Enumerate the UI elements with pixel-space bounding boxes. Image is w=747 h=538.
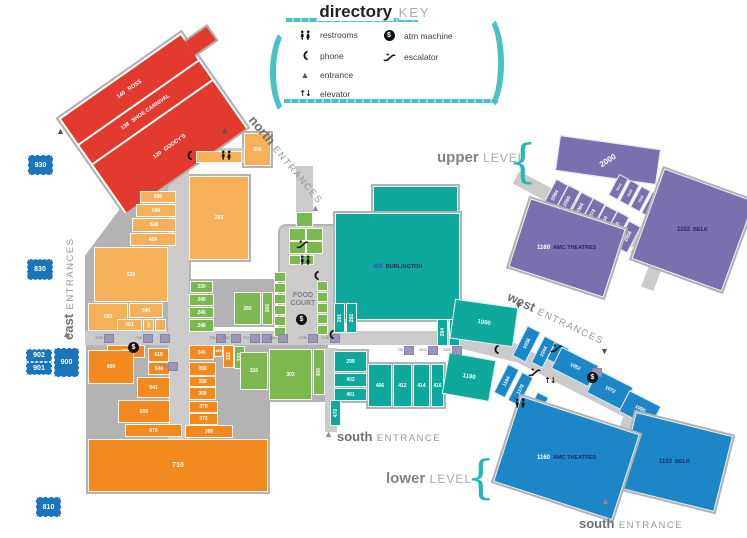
phone-icon [327,329,335,340]
badge-810: 810 [36,497,61,517]
kiosk-square [168,362,178,371]
store-299: 299 [334,351,367,372]
kiosk-square [250,334,260,343]
store-number: 292 [349,314,355,322]
key-title-light: KEY [399,5,431,20]
key-title: directory KEY [272,2,476,22]
store-number: 2022 [637,195,644,204]
kiosk-number: 2706 [154,364,167,368]
store-name: BURLINGTON [386,264,423,270]
store-number: 350 [198,366,206,372]
store-1102: 1102BELK [617,412,733,512]
food-stall [274,316,286,326]
entrance-icon: ▲ [56,127,65,136]
store-670: 670 [125,424,182,437]
store-number: 416 [433,383,441,389]
store-number: 550 [147,322,151,328]
store-number: 1102 [677,227,690,233]
store-346: 346 [189,345,214,360]
restrooms-icon [514,398,527,408]
store-322: 322 [223,345,234,368]
east-light: ENTRANCES [65,237,76,309]
store-number: 590 [154,194,162,200]
store-470: 470 [330,400,341,426]
store-number: 248 [197,323,205,329]
store-650: 650 [118,400,170,423]
east-bold: east [61,314,76,340]
key-item-label: restrooms [320,30,358,40]
upper-level-brace: { [508,134,537,188]
phone-icon [298,50,312,61]
food-court-line2: COURT [283,300,323,308]
east-entrances-label: east ENTRANCES [60,237,78,340]
key-item-label: elevator [320,89,350,99]
store-240: 240 [189,294,214,306]
store-number: 470 [333,409,339,417]
store-number: 540 [142,308,150,314]
badge-900: 900 [54,348,79,377]
store-520: 520 [94,247,168,302]
lower-level-label: lower LEVEL [386,470,472,488]
store-305: 305 [313,349,325,395]
store-number: 120 [152,150,163,160]
store-596: 596 [136,204,176,217]
store-unit [196,151,242,163]
kiosk-number: 2700 [90,336,103,340]
store-246: 246 [189,307,214,318]
store-380: 380 [185,425,233,438]
badge-930: 930 [28,155,53,175]
kiosk-square [143,334,153,343]
store-550: 550 [143,319,154,331]
key-item-atm: $ atm machine [382,30,453,41]
store-number: 406 [376,383,384,389]
food-stall [296,212,313,227]
food-stall [317,314,328,324]
entrance-icon: ▲ [298,71,312,80]
escalator-icon [528,368,541,377]
store-number: 299 [346,359,354,365]
store-number: 380 [205,429,213,435]
food-court-label: FOOD COURT [283,292,323,308]
store-number: 710 [172,462,184,469]
store-unit [155,319,166,331]
store-248: 248 [189,319,214,332]
store-number: 330 [216,349,222,353]
store-1160: 1160AMC THEATRES [493,396,640,520]
key-item-restrooms: restrooms [298,30,358,40]
store-number: 1190 [462,373,476,381]
store-number: 200 [253,147,261,153]
store-412: 412 [393,364,412,407]
store-number: 596 [152,208,160,214]
store-230: 230 [190,281,213,293]
kiosk-number: 726 [202,336,215,340]
store-number: 2000 [598,151,618,168]
store-number: 641 [149,385,157,391]
restrooms-icon [220,150,233,160]
kiosk-square [404,346,414,355]
entrance-icon: ▲ [600,347,609,356]
key-title-bold: directory [317,2,394,21]
restrooms-icon [298,30,312,40]
store-710: 710 [88,439,268,492]
store-number: 561 [125,322,133,328]
kiosk-number: 2730 [294,336,307,340]
store-number: 1160 [537,245,550,251]
south-right-bold: south [579,516,614,531]
kiosk-square [160,334,170,343]
store-number: 294 [440,328,446,336]
phone-icon [312,270,320,281]
store-number: 402 [346,377,354,383]
lower-level-brace: { [466,450,495,504]
store-420: 420 [130,233,176,246]
store-370: 370 [189,401,218,413]
badge-901: 901 [26,362,52,375]
phone-icon [492,344,500,355]
store-number: 619 [154,352,162,358]
store-number: 1194 [501,375,511,387]
south-center-bold: south [337,429,372,444]
store-260: 260 [234,292,261,325]
store-number: 140 [116,90,127,100]
store-590: 590 [140,191,176,203]
atm-icon: $ [587,372,598,383]
store-358: 358 [189,376,216,387]
food-stall [274,272,286,282]
store-name: GOODY'S [163,133,187,153]
store-number: 322 [226,352,232,360]
badge-830: 830 [27,259,53,280]
entrance-icon: ▲ [601,497,610,506]
key-item-label: escalator [404,52,439,62]
store-406: 406 [368,364,392,407]
store-number: 1102 [659,459,672,465]
kiosk-number: 2309 [438,348,451,352]
upper-bold: upper [437,149,479,166]
store-name: AMC THEATRES [553,245,596,251]
store-number: 670 [149,428,157,434]
elevator-icon: ↑↓ [298,90,312,98]
key-item-label: atm machine [404,31,453,41]
store-540: 540 [129,303,163,318]
mall-directory-map: directory KEY restrooms phone ▲ entrance… [0,0,747,538]
store-619: 619 [148,348,169,362]
kiosk-square [278,334,288,343]
key-item-elevator: ↑↓ elevator [298,89,350,99]
store-number: 2090 [562,196,573,209]
store-number: 240 [197,297,205,303]
store-number: 400 [373,264,383,270]
kiosk-number: 2702 [217,336,230,340]
kiosk-number: 724 [236,336,249,340]
store-330: 330 [214,345,223,357]
store-number: 1178 [515,383,525,395]
kiosk-number: 2420 [264,336,277,340]
store-number: 420 [149,237,157,243]
key-bottom-bar [284,99,498,103]
store-number: 138 [120,121,131,131]
escalator-icon [550,344,563,353]
store-number: 346 [197,350,205,356]
restrooms-icon [299,255,312,265]
store-name: BELK [694,227,709,233]
store-number: 266 [265,304,271,312]
atm-icon: $ [128,342,139,353]
south-right-light: ENTRANCE [619,520,683,531]
store-number: 1072 [604,385,617,395]
store-291: 291 [334,303,345,333]
store-number: 1160 [537,455,550,461]
store-number: 600 [107,364,115,370]
store-number: 650 [140,409,148,415]
store-350: 350 [189,362,216,376]
store-number: 414 [417,383,425,389]
store-number: 370 [199,404,207,410]
kiosk-square [104,334,114,343]
store-number: 230 [197,284,205,290]
lower-bold: lower [386,470,425,487]
store-292: 292 [346,303,357,333]
directory-key: directory KEY restrooms phone ▲ entrance… [272,4,500,105]
store-203: 203 [189,176,249,260]
store-number: 1038 [521,338,531,351]
key-item-label: phone [320,51,344,61]
store-name: BELK [676,459,691,465]
south-entrance-center-label: south ENTRANCE [337,428,441,446]
kiosk-number: 710 [129,336,142,340]
south-center-light: ENTRANCE [377,433,441,444]
kiosk-square [452,346,462,355]
store-2000: 2000 [555,135,661,185]
key-item-escalator: escalator [382,52,439,62]
store-number: 1000 [477,319,491,327]
key-item-label: entrance [320,70,353,80]
key-item-entrance: ▲ entrance [298,70,353,80]
store-number: 260 [243,306,251,312]
store-number: 360 [198,391,206,397]
store-number: 310 [250,368,258,374]
store-310: 310 [240,352,268,390]
store-641: 641 [137,377,170,398]
store-303: 303 [269,349,312,400]
store-372: 372 [189,413,218,425]
store-number: 520 [127,272,135,278]
store-number: 401 [346,392,354,398]
store-number: 2012 [615,183,622,192]
atm-icon: $ [382,30,396,41]
key-item-phone: phone [298,50,344,61]
store-360: 360 [189,387,216,400]
store-number: 1052 [569,362,582,372]
kiosk-number: 4002 [414,348,427,352]
store-number: 203 [215,215,223,221]
store-number: 560 [104,314,112,320]
store-unit [373,186,458,214]
store-414: 414 [413,364,430,407]
store-518: 518 [132,218,176,232]
store-number: 372 [199,416,207,422]
elevator-icon: ↑↓ [544,377,555,385]
food-stall [317,281,328,291]
store-number: 412 [398,383,406,389]
store-561: 561 [117,319,142,331]
store-402: 402 [334,373,367,387]
store-number: 303 [286,372,294,378]
badge-902: 902 [26,349,52,362]
south-entrance-right-label: south ENTRANCE [579,515,683,533]
store-number: 518 [150,222,158,228]
map-notch [0,0,21,16]
store-name: ROSS [127,79,143,93]
store-number: 305 [316,368,322,376]
store-600: 600 [88,350,134,384]
store-266: 266 [262,292,273,325]
escalator-icon [382,53,396,62]
entrance-icon: ▲ [220,126,229,135]
store-number: 358 [198,379,206,385]
phone-icon [185,150,193,161]
kiosk-square [428,346,438,355]
store-number: 246 [197,310,205,316]
escalator-icon [296,240,309,249]
store-294: 294 [437,319,448,346]
entrance-icon: ▲ [324,430,333,439]
atm-icon: $ [296,314,307,325]
store-number: 291 [337,314,343,322]
food-court-line1: FOOD [283,292,323,300]
store-number: 2020 [626,189,633,198]
key-right-paren [466,12,504,114]
store-name: AMC THEATRES [553,455,596,461]
store-1190: 1190 [442,352,497,402]
kiosk-number: 735 [390,348,403,352]
